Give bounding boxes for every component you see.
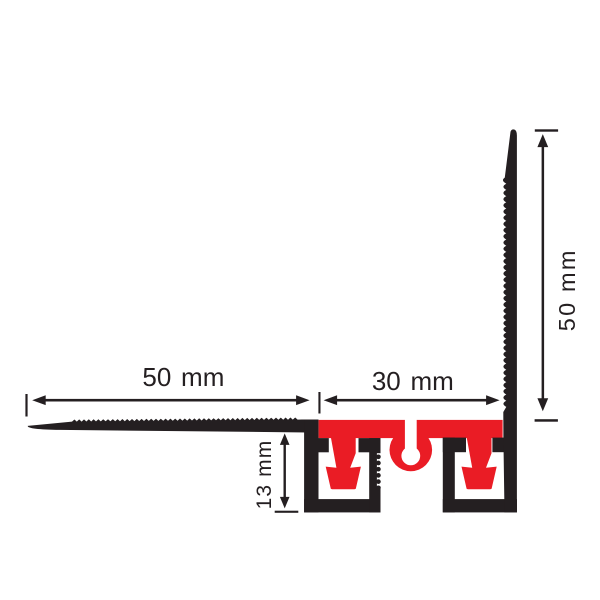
svg-text:30 mm: 30 mm bbox=[372, 366, 454, 396]
svg-text:13 mm: 13 mm bbox=[253, 440, 276, 510]
svg-text:50 mm: 50 mm bbox=[142, 362, 224, 392]
svg-text:50 mm: 50 mm bbox=[554, 248, 580, 331]
